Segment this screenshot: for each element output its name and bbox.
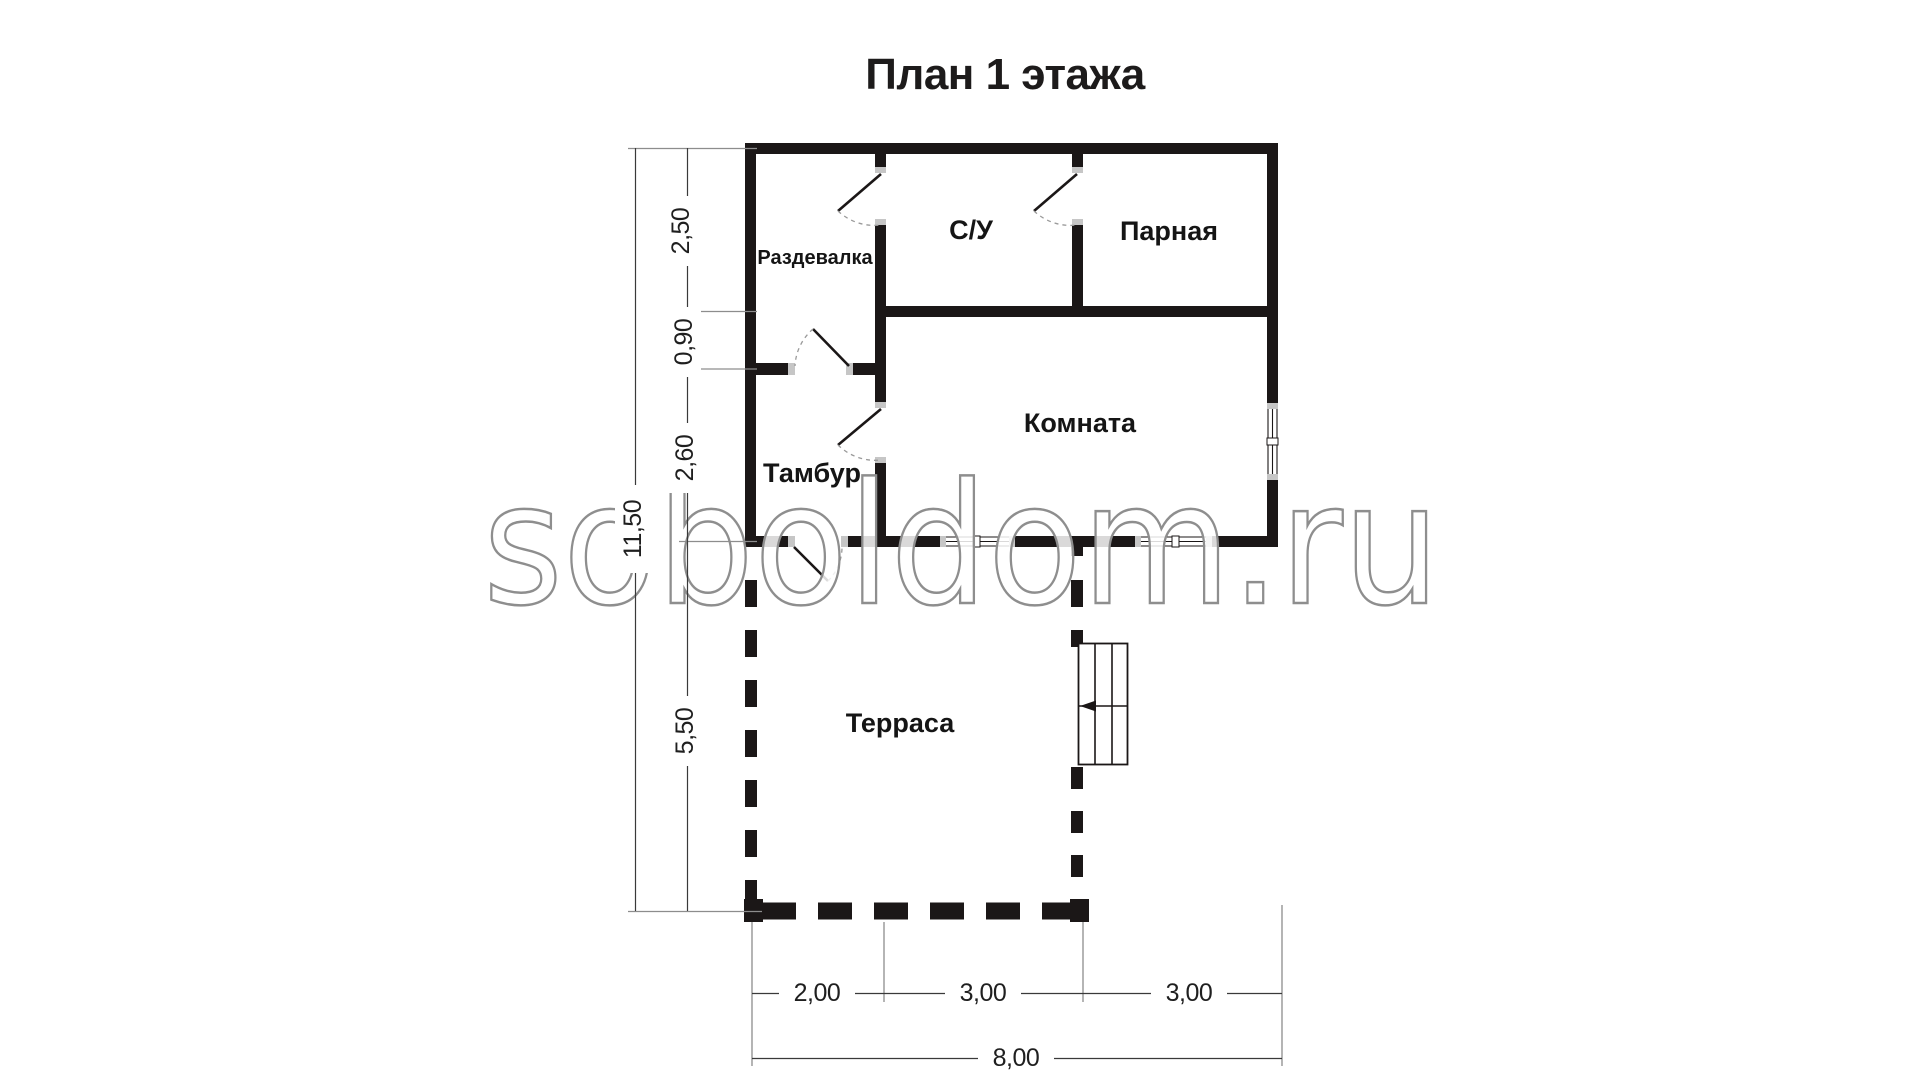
wall-top bbox=[745, 143, 1278, 154]
wall-su-parnaya-stub bbox=[1072, 143, 1083, 167]
terrace-corner-left bbox=[744, 899, 763, 922]
dim-left-seg2: 0,90 bbox=[670, 319, 698, 366]
stairs bbox=[1079, 644, 1128, 765]
floor-plan-page: Раздевалка С/У Парная Комната Тамбур Тер… bbox=[0, 0, 1920, 1080]
wall-su-parnaya-mid bbox=[1072, 225, 1083, 317]
door-su-parnaya bbox=[1034, 174, 1077, 211]
room-label-komnata: Комната bbox=[1024, 408, 1137, 438]
wall-divider-left-stub bbox=[875, 143, 886, 167]
dim-left-total: 11,50 bbox=[619, 500, 647, 558]
dim-left-seg3: 2,60 bbox=[671, 435, 699, 482]
door-tambur-razdevalka bbox=[813, 329, 849, 366]
room-label-terrasa: Терраса bbox=[846, 708, 956, 738]
dim-bottom-seg2: 3,00 bbox=[960, 979, 1007, 1007]
door-razdevalka-su bbox=[838, 174, 881, 211]
wall-right-upper bbox=[1267, 143, 1278, 403]
terrace-corner-right bbox=[1070, 899, 1089, 922]
wall-horizontal-main bbox=[875, 306, 1278, 317]
dim-left-seg4: 5,50 bbox=[671, 708, 699, 755]
floor-plan-drawing: Раздевалка С/У Парная Комната Тамбур Тер… bbox=[0, 0, 1920, 1080]
dim-bottom-total: 8,00 bbox=[993, 1044, 1040, 1072]
dim-bottom-seg1: 2,00 bbox=[794, 979, 841, 1007]
room-label-parnaya: Парная bbox=[1120, 216, 1218, 246]
dim-left-seg1: 2,50 bbox=[667, 208, 695, 255]
wall-razdevalka-tambur-right bbox=[853, 363, 885, 375]
door-tambur-komnata bbox=[838, 409, 881, 445]
dim-bottom-seg3: 3,00 bbox=[1166, 979, 1213, 1007]
room-label-su: С/У bbox=[949, 215, 994, 245]
room-label-razdevalka: Раздевалка bbox=[757, 247, 873, 269]
page-title: План 1 этажа bbox=[865, 50, 1146, 99]
